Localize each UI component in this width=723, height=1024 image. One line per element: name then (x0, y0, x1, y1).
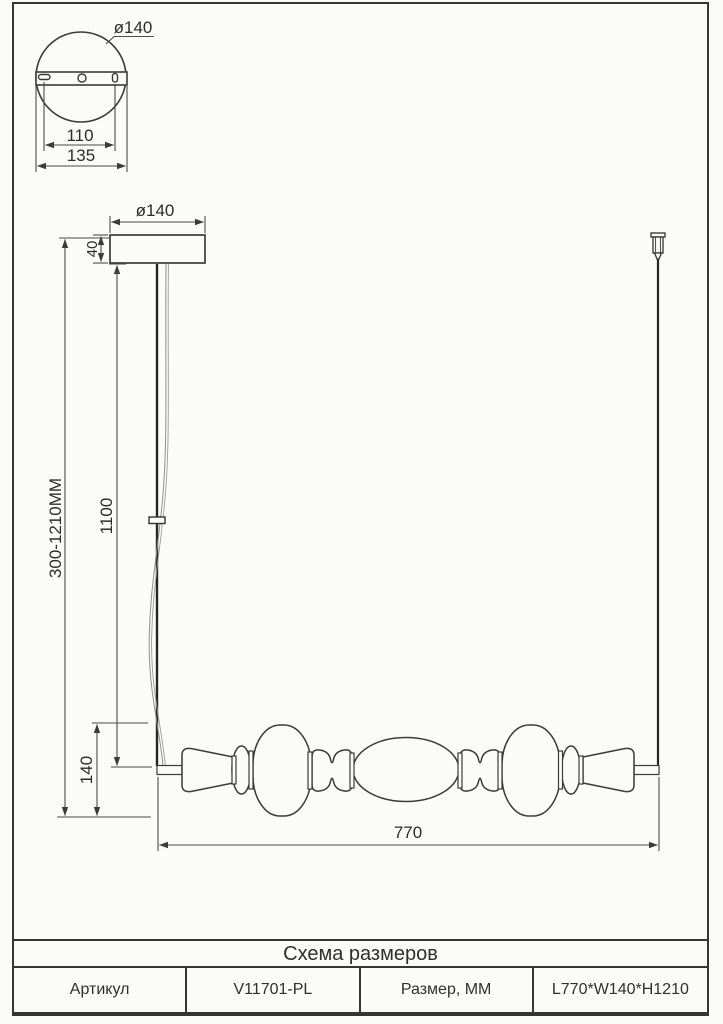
dim-top-view-diameter (106, 37, 154, 45)
glass-oval-right (502, 725, 560, 816)
left-suspension (149, 264, 168, 766)
connector-stub-right (634, 766, 659, 775)
table-title: Схема размеров (14, 941, 707, 968)
label-hole-spacing: 110 (66, 126, 93, 145)
collar (249, 751, 253, 789)
glass-trumpet-left (182, 748, 233, 791)
size-table: Схема размеров Артикул V11701-PL Размер,… (12, 939, 709, 1014)
label-rod-length: 1100 (97, 498, 116, 535)
mounting-plate-top-view (36, 32, 127, 122)
dimension-scheme-page: ø140 110 135 ø140 40 (0, 0, 723, 1024)
collar (458, 753, 462, 788)
label-body-height: 140 (77, 756, 96, 784)
collar (232, 756, 236, 784)
label-plate-width: 135 (67, 146, 95, 165)
glass-ellipse-center (353, 738, 459, 802)
ceiling-grip-neck (655, 253, 662, 259)
lamp-body (157, 725, 659, 816)
technical-drawing: ø140 110 135 ø140 40 (0, 0, 723, 941)
collar (350, 753, 354, 788)
glass-spool-right (460, 750, 500, 791)
collar (498, 752, 502, 789)
canopy-front-view (110, 235, 205, 263)
article-value-cell: V11701-PL (187, 968, 360, 1012)
connector-stub-left (157, 766, 182, 775)
canopy-rect (110, 235, 205, 263)
ceiling-grip-body (653, 237, 663, 253)
glass-oval-left (253, 725, 311, 816)
collar (308, 752, 312, 789)
table-row: Артикул V11701-PL Размер, ММ L770*W140*H… (14, 968, 707, 1012)
dim-body-height-140 (92, 723, 148, 816)
article-label-cell: Артикул (14, 968, 187, 1012)
glass-lens-right (562, 746, 581, 794)
label-body-length: 770 (394, 823, 422, 842)
size-value-cell: L770*W140*H1210 (534, 968, 707, 1012)
collar (579, 756, 583, 784)
label-canopy-diameter: ø140 (136, 201, 175, 220)
collar (559, 751, 563, 789)
glass-trumpet-right (583, 748, 634, 791)
right-suspension (651, 233, 665, 766)
leader-line (106, 37, 154, 45)
cable-adjuster (149, 517, 165, 524)
label-top-view-diameter: ø140 (114, 18, 153, 37)
label-canopy-height: 40 (84, 241, 101, 258)
label-height-range: 300-1210MM (46, 478, 65, 578)
size-label-cell: Размер, ММ (361, 968, 534, 1012)
glass-spool-left (312, 750, 352, 791)
